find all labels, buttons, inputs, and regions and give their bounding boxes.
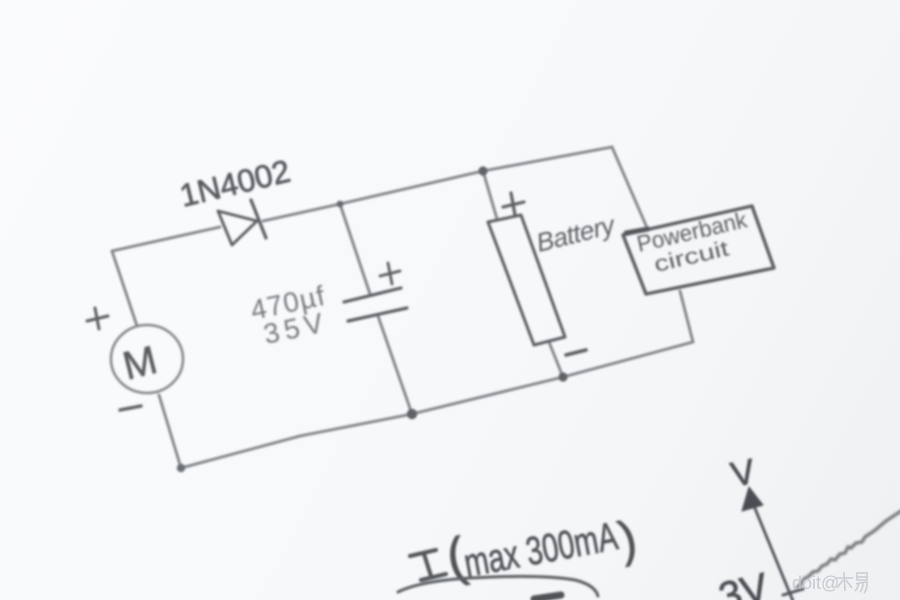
svg-text:Battery: Battery [533,209,619,258]
svg-text:max 300mA: max 300mA [461,514,622,586]
svg-text:doit@: doit@ [792,573,839,593]
svg-text:V: V [728,452,760,495]
svg-text:3V: 3V [715,565,773,600]
svg-text:): ) [614,510,642,568]
svg-text:M: M [119,338,162,389]
svg-text:1N4002: 1N4002 [176,153,293,214]
